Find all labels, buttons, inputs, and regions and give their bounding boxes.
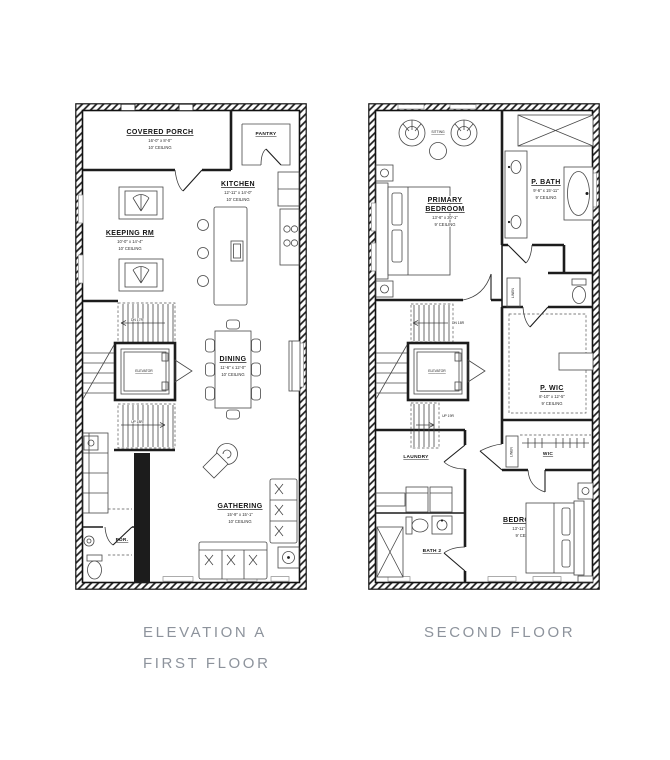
primary-ceiling: 9' CEILING: [434, 222, 455, 227]
elevator-label: ELEVATOR: [135, 369, 153, 373]
sink-icon: [84, 536, 94, 546]
porch-post: [179, 104, 193, 110]
bath2-label: BATH 2: [423, 548, 442, 554]
primary-label-1: PRIMARY: [428, 197, 463, 204]
dining-label: DINING: [220, 356, 247, 363]
linen-label: LINEN: [511, 287, 515, 298]
sink-icon: [432, 516, 452, 534]
stairs-dn-label: DN 17R: [131, 318, 144, 322]
fridge-icon: [278, 172, 299, 206]
pbath-ceiling: 9' CEILING: [535, 195, 556, 200]
pbath-label: P. BATH: [531, 179, 560, 186]
pantry-label: PANTRY: [256, 131, 277, 137]
first-floor-caption: ELEVATION A FIRST FLOOR: [143, 617, 271, 679]
second-floor-label: SECOND FLOOR: [424, 617, 575, 648]
elevation-label: ELEVATION A: [143, 617, 271, 648]
dining-ceiling: 10' CEILING: [221, 372, 244, 377]
media-cabinet-icon: [119, 259, 163, 291]
pwic-ceiling: 9' CEILING: [541, 401, 562, 406]
primary-label-2: BEDROOM: [425, 206, 464, 213]
bench-icon: [559, 353, 593, 370]
side-table-icon: [278, 547, 299, 568]
pwic-dims: 8'-10" x 12'-5": [539, 394, 565, 399]
gathering-ceiling: 10' CEILING: [228, 519, 251, 524]
elevator-label: ELEVATOR: [428, 369, 446, 373]
tub-icon: [564, 167, 593, 220]
sitting-chair-icon: [399, 120, 425, 146]
bench-icon: [270, 479, 297, 543]
shower-icon: [518, 115, 593, 146]
keeping-ceiling: 10' CEILING: [118, 246, 141, 251]
kitchen-ceiling: 10' CEILING: [226, 197, 249, 202]
laundry-label: LAUNDRY: [403, 454, 429, 460]
shower-icon: [377, 527, 403, 577]
covered-porch-label: COVERED PORCH: [126, 129, 193, 136]
keeping-label: KEEPING RM: [106, 230, 154, 237]
stairs-dn-label: DN 18R: [452, 321, 465, 325]
vanity-icon: [505, 151, 527, 238]
stairs-up-label: UP 18R: [131, 420, 143, 424]
pwic-label: P. WIC: [540, 385, 564, 392]
cooktop-icon: [280, 209, 299, 265]
gathering-label: GATHERING: [217, 503, 262, 510]
kitchen-dims: 12'-11" x 14'-0": [224, 190, 252, 195]
first-floor-label: FIRST FLOOR: [143, 648, 271, 679]
second-floor-caption: SECOND FLOOR: [424, 617, 575, 648]
toilet-icon: [572, 279, 586, 304]
media-cabinet-icon: [119, 187, 163, 219]
sitting-label: SITTING: [431, 130, 445, 134]
covered-porch-dims: 16'-0" x 8'-0": [148, 138, 172, 143]
toilet-icon: [87, 555, 102, 579]
kitchen-label: KITCHEN: [221, 181, 255, 188]
first-floor-plan: COVERED PORCH 16'-0" x 8'-0" 10' CEILING…: [75, 103, 307, 590]
sofa-icon: [199, 542, 267, 579]
porch-post: [121, 104, 135, 110]
counter: [376, 493, 405, 506]
linen-label: LINEN: [510, 446, 514, 457]
dining-dims: 11'-6" x 12'-0": [220, 365, 246, 370]
keeping-dims: 10'-0" x 14'-4": [117, 239, 143, 244]
wic2-label: WIC: [543, 451, 553, 457]
second-floor-plan: SITTING PRIMARY BEDROOM 13'-6" x 20'-1" …: [368, 103, 600, 590]
gathering-dims: 15'-9" x 15'-1": [227, 512, 253, 517]
round-table-icon: [430, 143, 447, 160]
primary-dims: 13'-6" x 20'-1": [432, 215, 458, 220]
covered-porch-ceiling: 10' CEILING: [148, 145, 171, 150]
pbath-dims: 9'-6" x 15'-11": [533, 188, 559, 193]
stairs-up-label: UP 19R: [442, 414, 454, 418]
sitting-chair-icon: [451, 120, 477, 146]
buffet-icon: [289, 341, 300, 391]
